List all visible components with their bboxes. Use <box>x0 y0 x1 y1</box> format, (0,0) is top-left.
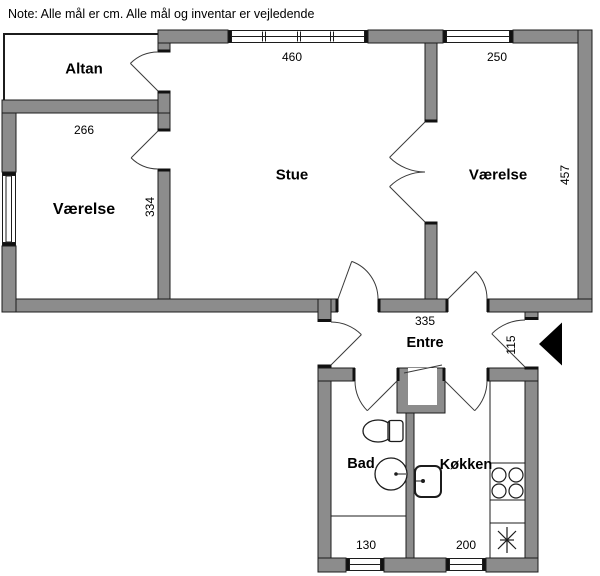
window-vaerelse-left <box>3 172 16 246</box>
window-bad-bottom <box>346 559 384 571</box>
dim-koekken-width: 200 <box>456 539 476 551</box>
dim-entre-width: 335 <box>415 315 435 327</box>
door-entrance-left <box>331 322 361 365</box>
dim-vaerelse-right-depth: 457 <box>559 165 571 185</box>
floor-plan: Note: Alle mål er cm. Alle mål og invent… <box>0 0 600 576</box>
door-koekken <box>445 381 487 411</box>
room-label-bad: Bad <box>347 457 374 472</box>
wall-mid-1 <box>2 299 338 312</box>
door-openings <box>158 52 539 405</box>
window-stue-top <box>228 31 368 43</box>
door-entre-vaerelse-right <box>448 271 487 299</box>
closet-interior <box>408 368 437 405</box>
note-text: Note: Alle mål er cm. Alle mål og invent… <box>8 7 314 21</box>
floor-plan-drawing <box>0 0 600 576</box>
double-door-stue-vaerelse <box>390 122 425 222</box>
stove-icon <box>492 468 523 498</box>
wall-top-1 <box>158 30 228 43</box>
kitchen-sink-icon <box>414 466 441 497</box>
door-bad <box>355 381 397 411</box>
window-vaerelse-right-top <box>443 31 513 43</box>
wall-altan-bottom <box>2 100 170 113</box>
dim-entre-entry: 115 <box>505 335 517 354</box>
dim-vaerelse-left-depth: 334 <box>144 197 156 217</box>
dim-vaerelse-left-width: 266 <box>74 124 94 136</box>
dim-vaerelse-right-width: 250 <box>487 51 507 63</box>
wall-mid-3 <box>487 299 592 312</box>
room-label-entre: Entre <box>406 336 443 351</box>
bathroom-sink-icon <box>375 458 407 490</box>
wall-mid-2 <box>378 299 448 312</box>
dim-bad-width: 130 <box>356 539 376 551</box>
door-altan <box>130 52 158 91</box>
entrance-arrow-icon <box>539 323 562 366</box>
wall-right <box>578 30 592 312</box>
door-jamb-caps <box>158 50 539 382</box>
window-koekken-bottom <box>446 559 486 571</box>
toilet-icon <box>363 420 403 442</box>
room-label-stue: Stue <box>276 168 309 183</box>
dim-stue-width: 460 <box>282 51 302 63</box>
door-vaerelse-left <box>131 131 158 169</box>
fridge-icon <box>498 527 516 553</box>
door-entre-stue <box>338 261 378 299</box>
wall-top-2 <box>368 30 443 43</box>
room-label-koekken: Køkken <box>440 458 492 473</box>
room-label-altan: Altan <box>65 62 103 77</box>
room-label-vaerelse-left: Værelse <box>53 202 115 218</box>
room-label-vaerelse-right: Værelse <box>469 168 527 183</box>
wall-left-lower <box>2 246 16 312</box>
